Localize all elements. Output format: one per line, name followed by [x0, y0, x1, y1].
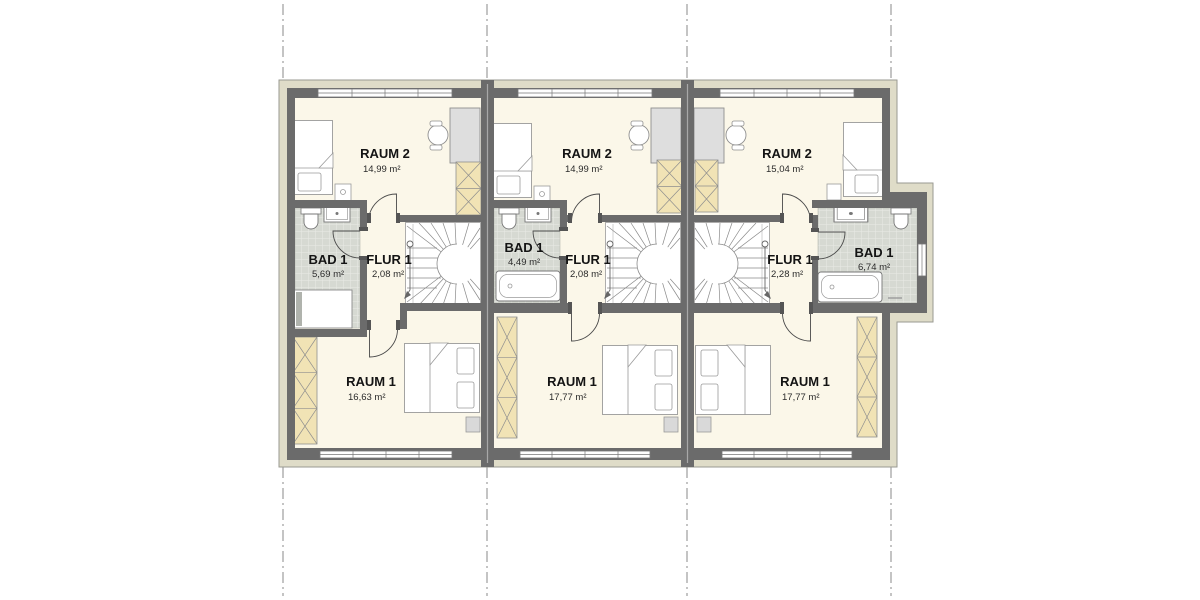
unit-3-wardrobe-raum2	[695, 160, 718, 212]
unit-3-raum1-name: RAUM 1	[780, 374, 830, 389]
unit-1-bed-raum2	[293, 121, 333, 195]
grid-line-top	[283, 4, 891, 80]
floor-plan-page: RAUM 2 14,99 m² BAD 1 5,69 m² FLUR 1 2,0…	[0, 0, 1200, 600]
unit-3-bed-raum2	[843, 123, 883, 197]
window-top-unit-1	[318, 89, 452, 97]
floor-plan-canvas: RAUM 2 14,99 m² BAD 1 5,69 m² FLUR 1 2,0…	[0, 0, 1200, 600]
unit-1-raum1-name: RAUM 1	[346, 374, 396, 389]
unit-1-raum1-area: 16,63 m²	[348, 392, 386, 403]
unit-1-bad1-name: BAD 1	[308, 252, 347, 267]
unit-3-raum1-area: 17,77 m²	[782, 392, 820, 403]
unit-3-wardrobe-raum1	[857, 317, 877, 437]
unit-2-flur1-name: FLUR 1	[565, 252, 611, 267]
unit-1-flur1-name: FLUR 1	[366, 252, 412, 267]
unit-1-nightstand	[335, 184, 351, 201]
unit-1-side-table	[466, 417, 480, 432]
unit-3-bath-note-mark	[888, 297, 902, 299]
grid-line-bottom	[283, 467, 891, 596]
unit-3-flur1-name: FLUR 1	[767, 252, 813, 267]
unit-1-shower	[294, 290, 352, 328]
unit-1-raum2-name: RAUM 2	[360, 146, 410, 161]
unit-3-bed-raum1	[696, 345, 771, 415]
wall-right-lower	[882, 303, 890, 460]
unit-3-bad1-name: BAD 1	[854, 245, 893, 260]
unit-3-nightstand	[827, 184, 841, 200]
wall-right-upper	[882, 88, 890, 200]
unit-1-wardrobe-raum2	[456, 162, 481, 215]
unit-3-bathtub	[818, 272, 882, 302]
unit-2-raum1-name: RAUM 1	[547, 374, 597, 389]
unit-1-flur1-area: 2,08 m²	[372, 269, 404, 280]
unit-2-bathtub	[496, 271, 560, 301]
unit-2-flur1-area: 2,08 m²	[570, 269, 602, 280]
unit-2-staircase	[604, 223, 681, 306]
unit-2-bed-raum2	[492, 124, 532, 198]
unit-2-raum1-area: 17,77 m²	[549, 392, 587, 403]
unit-2-bad1-name: BAD 1	[504, 240, 543, 255]
window-side-unit-3-bath	[918, 244, 926, 276]
unit-3-staircase	[695, 223, 772, 306]
unit-1-bad1-area: 5,69 m²	[312, 269, 344, 280]
unit-2-raum2-name: RAUM 2	[562, 146, 612, 161]
unit-3-flur1-area: 2,28 m²	[771, 269, 803, 280]
window-bottom-unit-1	[320, 451, 452, 458]
window-top-unit-3	[720, 89, 854, 97]
unit-2-wardrobe-raum1	[497, 317, 517, 438]
unit-2-raum2-area: 14,99 m²	[565, 164, 603, 175]
unit-1-raum2-area: 14,99 m²	[363, 164, 401, 175]
window-top-unit-2	[518, 89, 652, 97]
unit-2-bed-raum1	[603, 345, 678, 415]
unit-2-wardrobe-raum2	[657, 160, 682, 213]
unit-2-side-table	[664, 417, 678, 432]
unit-3-bad1-area: 6,74 m²	[858, 262, 890, 273]
unit-1-staircase	[404, 223, 481, 306]
window-bottom-unit-2	[520, 451, 650, 458]
unit-3-side-table	[697, 417, 711, 432]
unit-3-raum2-name: RAUM 2	[762, 146, 812, 161]
wall-left	[287, 88, 295, 460]
unit-1-bed-raum1	[405, 343, 480, 413]
window-bottom-unit-3	[722, 451, 852, 458]
unit-3-raum2-area: 15,04 m²	[766, 164, 804, 175]
unit-2-bad1-area: 4,49 m²	[508, 257, 540, 268]
unit-1-wardrobe-raum1	[293, 337, 317, 444]
